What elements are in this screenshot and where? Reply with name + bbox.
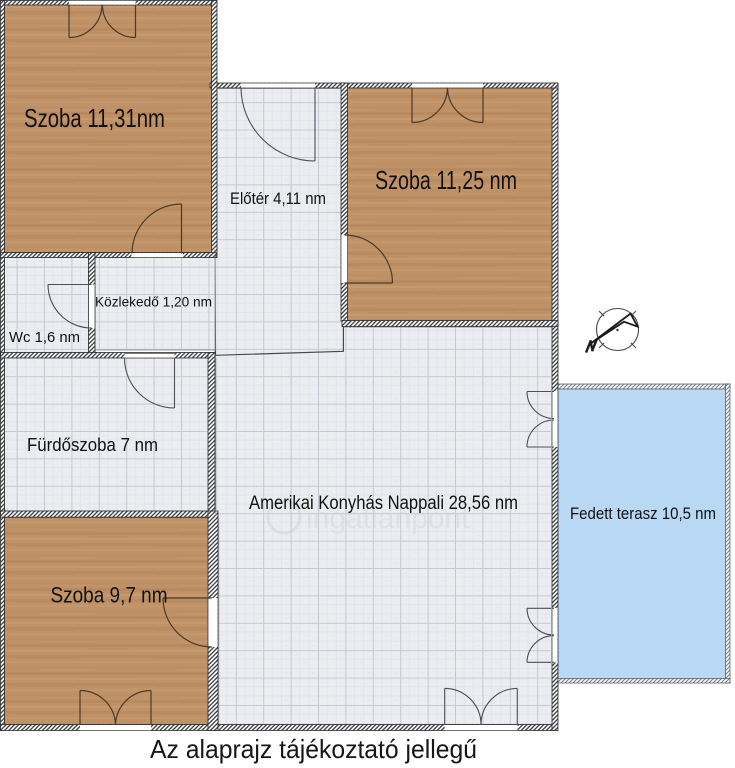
svg-text:Amerikai Konyhás Nappali 28,56: Amerikai Konyhás Nappali 28,56 nm — [249, 493, 518, 514]
svg-text:Közlekedő 1,20 nm: Közlekedő 1,20 nm — [95, 294, 212, 310]
svg-text:Fedett terasz 10,5 nm: Fedett terasz 10,5 nm — [570, 504, 716, 523]
svg-text:Wc 1,6 nm: Wc 1,6 nm — [9, 329, 80, 346]
svg-text:Szoba 9,7 nm: Szoba 9,7 nm — [51, 583, 168, 608]
svg-text:Előtér 4,11 nm: Előtér 4,11 nm — [230, 189, 326, 208]
svg-text:Az alaprajz tájékoztató jelleg: Az alaprajz tájékoztató jellegű — [150, 734, 477, 764]
svg-text:Szoba 11,25 nm: Szoba 11,25 nm — [375, 165, 517, 195]
svg-text:Szoba 11,31nm: Szoba 11,31nm — [24, 103, 165, 133]
svg-text:Fürdőszoba 7 nm: Fürdőszoba 7 nm — [27, 435, 158, 455]
